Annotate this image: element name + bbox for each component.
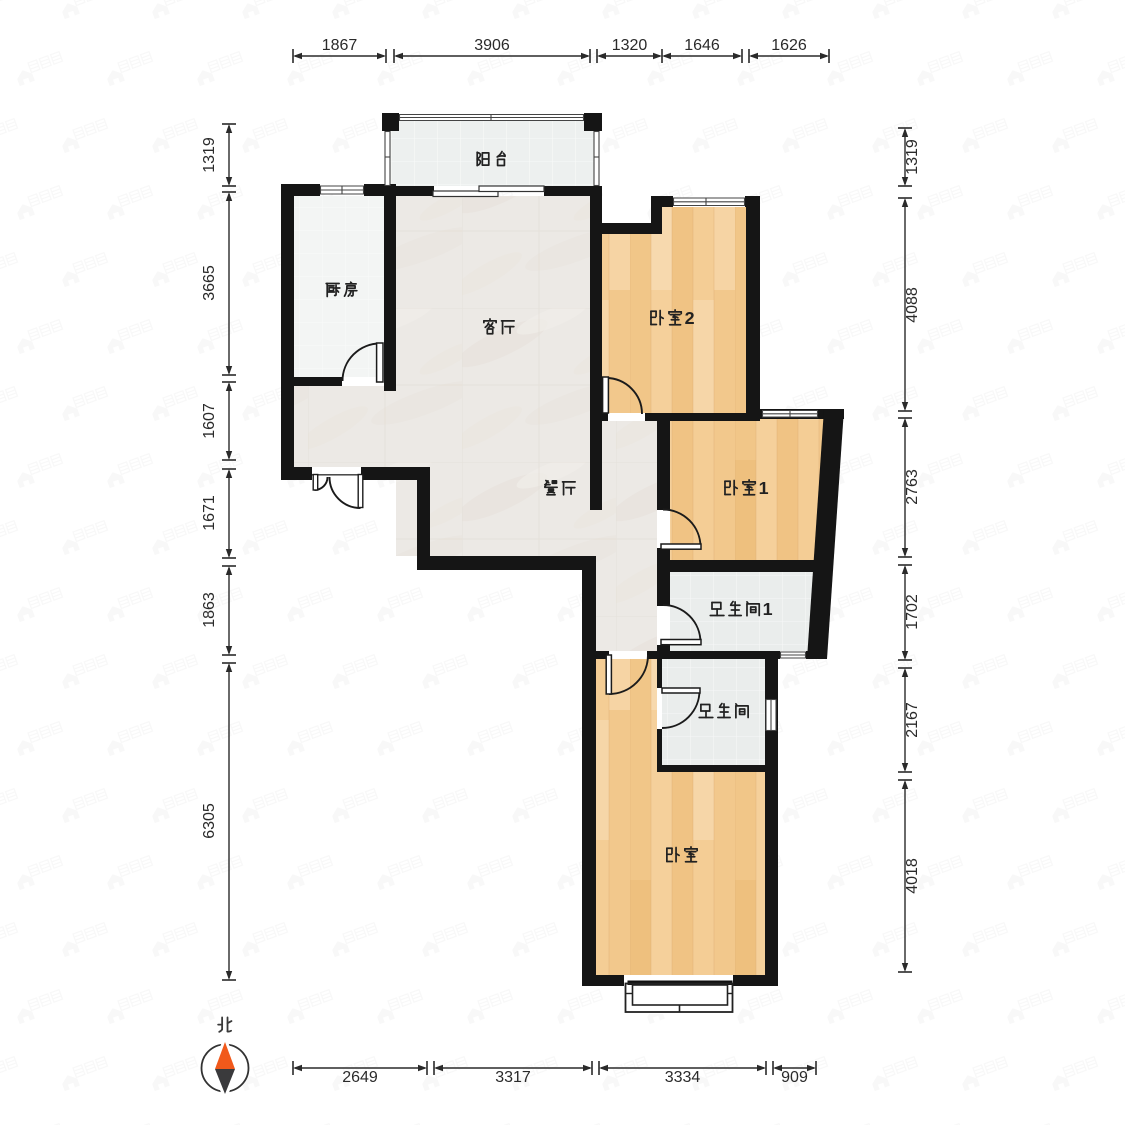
svg-text:1: 1 — [763, 599, 773, 619]
svg-text:3906: 3906 — [474, 37, 510, 54]
svg-text:2649: 2649 — [342, 1069, 378, 1086]
svg-text:3317: 3317 — [495, 1069, 531, 1086]
svg-text:4018: 4018 — [904, 858, 921, 894]
svg-text:2167: 2167 — [904, 702, 921, 738]
svg-text:1702: 1702 — [904, 594, 921, 630]
svg-text:2763: 2763 — [904, 469, 921, 505]
svg-text:1320: 1320 — [612, 37, 648, 54]
svg-text:1671: 1671 — [201, 495, 218, 531]
svg-text:1867: 1867 — [322, 37, 358, 54]
svg-text:1626: 1626 — [771, 37, 807, 54]
svg-text:1319: 1319 — [201, 137, 218, 173]
svg-text:1: 1 — [759, 478, 769, 498]
svg-text:1607: 1607 — [201, 403, 218, 439]
svg-text:3334: 3334 — [665, 1069, 701, 1086]
svg-text:1319: 1319 — [904, 139, 921, 175]
svg-text:1863: 1863 — [201, 592, 218, 628]
svg-text:1646: 1646 — [684, 37, 720, 54]
svg-text:4088: 4088 — [904, 287, 921, 323]
svg-text:3665: 3665 — [201, 265, 218, 301]
svg-text:909: 909 — [781, 1069, 808, 1086]
svg-text:2: 2 — [685, 308, 695, 328]
svg-text:6305: 6305 — [201, 803, 218, 839]
